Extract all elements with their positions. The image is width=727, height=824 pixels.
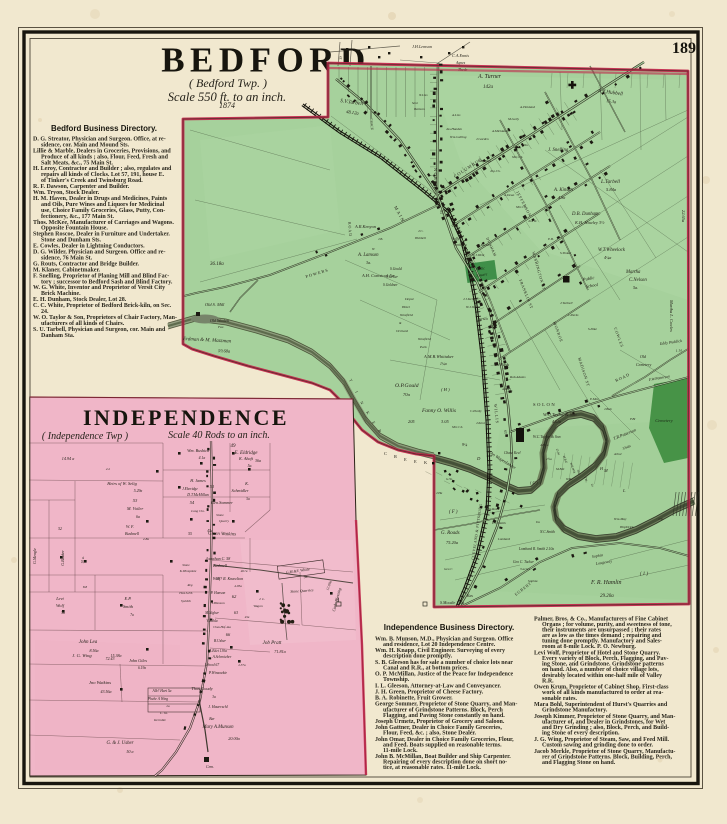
svg-text:1.Parks: 1.Parks	[568, 313, 579, 317]
svg-text:Jos.W.: Jos.W.	[528, 219, 537, 223]
svg-text:2a: 2a	[166, 704, 170, 708]
svg-text:A.Mickland: A.Mickland	[491, 129, 508, 133]
svg-text:Syd Kln: Syd Kln	[181, 599, 191, 603]
svg-text:Kas: Kas	[466, 594, 473, 598]
svg-text:Depot: Depot	[404, 297, 415, 301]
svg-text:4.1a: 4.1a	[199, 456, 206, 460]
svg-text:46?a: 46?a	[241, 569, 248, 573]
svg-text:S.Goldner: S.Goldner	[383, 283, 398, 287]
svg-text:Chase Keel: Chase Keel	[504, 451, 520, 455]
svg-text:A.Tinkland: A.Tinkland	[519, 105, 535, 109]
svg-text:J.H.Lemson: J.H.Lemson	[412, 44, 432, 49]
svg-text:( 1 ): ( 1 )	[640, 572, 648, 577]
svg-text:K.H. Hawley 3½: K.H. Hawley 3½	[574, 220, 605, 225]
svg-text:J.B.: J.B.	[378, 237, 383, 241]
svg-text:Job Pratt: Job Pratt	[263, 641, 282, 646]
svg-text:Fac.: Fac.	[217, 325, 224, 329]
svg-text:70a: 70a	[403, 392, 411, 397]
svg-text:No.: No.	[523, 143, 529, 147]
svg-text:E.Mon: E.Mon	[589, 397, 599, 401]
svg-text:J. H. Green, Proprietor of Che: J. H. Green, Proprietor of Cheese Factor…	[375, 689, 484, 695]
svg-text:N.Liss: N.Liss	[418, 93, 428, 97]
svg-text:1¼a: 1¼a	[440, 362, 447, 366]
svg-text:5a: 5a	[61, 611, 65, 615]
svg-text:G.Bauker: G.Bauker	[60, 550, 65, 566]
svg-text:K.Winspokie: K.Winspokie	[179, 569, 197, 573]
svg-text:C. C. White, Proprietor of Bed: C. C. White, Proprietor of Bedford Brick…	[33, 303, 172, 309]
svg-text:Martha: Martha	[625, 270, 641, 275]
svg-text:John Lea: John Lea	[79, 640, 98, 645]
svg-text:Kermble: Kermble	[153, 718, 166, 722]
svg-text:50 a: 50 a	[127, 749, 134, 754]
svg-text:4.03a: 4.03a	[234, 584, 242, 588]
svg-text:Flagging, and Paving Stone con: Flagging, and Paving Stone constantly on…	[383, 713, 505, 719]
svg-text:8.8: 8.8	[83, 585, 88, 589]
svg-text:M: M	[603, 468, 608, 473]
svg-text:Scott: Scott	[454, 243, 462, 247]
svg-text:S.Geller: S.Geller	[386, 275, 398, 279]
svg-text:Wagon: Wagon	[253, 604, 263, 608]
svg-text:S.Gould: S.Gould	[390, 267, 402, 271]
svg-text:Custom sawing and grinding don: Custom sawing and grinding done to order…	[542, 743, 653, 749]
svg-text:Mrs Ch.: Mrs Ch.	[451, 425, 463, 429]
svg-text:75.20a: 75.20a	[446, 540, 459, 545]
svg-text:11-mile Lock.: 11-mile Lock.	[383, 748, 418, 754]
svg-text:Sally: Sally	[452, 237, 460, 241]
svg-text:Township.: Township.	[383, 677, 410, 683]
svg-text:5.29a: 5.29a	[134, 489, 143, 493]
svg-text:Wolf: Wolf	[56, 603, 65, 608]
svg-text:J.C.: J.C.	[418, 229, 424, 233]
svg-text:Flour, Feed, &c. ; also, Stone: Flour, Feed, &c. ; also, Stone Dealer.	[383, 731, 477, 737]
svg-text:45a: 45a	[245, 615, 250, 619]
svg-text:Phebe A Wing: Phebe A Wing	[147, 697, 168, 701]
svg-text:A.Edet 130a: A.Edet 130a	[208, 649, 227, 653]
svg-text:R: R	[394, 454, 397, 459]
svg-text:W.C.Taylor & Son: W.C.Taylor & Son	[533, 435, 561, 439]
svg-text:( Bedford Twp. ): ( Bedford Twp. )	[189, 76, 267, 90]
svg-text:W.J.Went: W.J.Went	[472, 253, 485, 257]
svg-text:M.Nigher: M.Nigher	[204, 611, 219, 615]
svg-text:A.M.B.Whittaker: A.M.B.Whittaker	[423, 354, 454, 359]
svg-text:36a: 36a	[255, 458, 261, 463]
svg-text:4.80 a: 4.80 a	[540, 443, 549, 447]
svg-text:J. Hauerschl: J. Hauerschl	[208, 705, 227, 709]
svg-text:Canal and R.R., at bottom pric: Canal and R.R., at bottom prices.	[383, 665, 469, 671]
svg-text:J.J.Keeler: J.J.Keeler	[476, 243, 490, 247]
svg-text:John Giles: John Giles	[129, 658, 147, 663]
svg-text:L: L	[622, 488, 626, 493]
svg-text:desirably located within one-h: desirably located within one-half mile o…	[542, 673, 662, 679]
svg-text:K.: K.	[244, 481, 249, 486]
svg-text:63: 63	[234, 610, 238, 615]
svg-text:M.Getty: M.Getty	[507, 117, 520, 121]
svg-text:N.C.Smith: N.C.Smith	[539, 530, 555, 534]
svg-text:62: 62	[232, 594, 237, 599]
svg-text:Wm.Ross: Wm.Ross	[486, 507, 499, 511]
svg-text:Wm.May: Wm.May	[614, 517, 627, 521]
svg-text:J.Bab: J.Bab	[604, 407, 612, 411]
svg-text:E.C.Smith: E.C.Smith	[491, 521, 506, 525]
svg-text:20.00a: 20.00a	[228, 736, 240, 741]
svg-text:K. Ahaft: K. Ahaft	[238, 456, 254, 461]
svg-text:Mrs Ch.: Mrs Ch.	[515, 205, 527, 209]
svg-text:HopDrick: HopDrick	[619, 525, 634, 529]
svg-text:S.Tinker: S.Tinker	[560, 251, 572, 255]
svg-text:Bentson: Bentson	[414, 107, 425, 111]
svg-text:H. James: H. James	[189, 478, 206, 483]
svg-text:I. L. Gleeson, Attorney-at-Law: I. L. Gleeson, Attorney-at-Law and Conve…	[375, 683, 501, 689]
svg-text:Lombard: Lombard	[497, 537, 510, 541]
svg-text:4.61a: 4.61a	[552, 419, 561, 424]
svg-text:4.9a: 4.9a	[558, 195, 565, 200]
svg-text:J.Kent: J.Kent	[476, 421, 486, 425]
svg-text:W.Re: W.Re	[566, 477, 573, 481]
svg-text:5a.: 5a.	[248, 464, 253, 468]
svg-text:A.Liss: A.Liss	[451, 113, 461, 117]
svg-text:S.Dike: S.Dike	[588, 327, 597, 331]
svg-text:S.Moodie 130a: S.Moodie 130a	[440, 600, 464, 605]
svg-text:G.W.: G.W.	[446, 477, 453, 481]
svg-text:SOLON: SOLON	[533, 402, 556, 407]
svg-text:189: 189	[672, 40, 696, 57]
svg-text:S.Hanson: S.Hanson	[211, 601, 224, 605]
svg-text:A.Burt: A.Burt	[501, 387, 512, 391]
svg-text:R.R.: R.R.	[542, 678, 554, 684]
svg-text:1874: 1874	[219, 101, 235, 110]
svg-text:( Independence Twp ): ( Independence Twp )	[42, 431, 129, 442]
svg-text:Thos.S.P.S.: Thos.S.P.S.	[179, 591, 193, 595]
svg-text:Scale 40 Rods to an inch.: Scale 40 Rods to an inch.	[168, 430, 270, 441]
svg-text:B.Usher: B.Usher	[214, 639, 226, 643]
svg-text:7a: 7a	[130, 613, 134, 617]
svg-text:Green Watkins: Green Watkins	[208, 532, 236, 538]
svg-text:3a.: 3a.	[366, 260, 371, 265]
svg-text:Independence Business Director: Independence Business Directory.	[384, 623, 515, 632]
svg-text:ing Stone of every description: ing Stone of every description.	[542, 731, 620, 737]
svg-text:Jas.Handen: Jas.Handen	[446, 127, 462, 131]
svg-text:Levi: Levi	[55, 596, 64, 601]
svg-text:M.B.K: M.B.K	[555, 467, 565, 471]
svg-text:2½a: 2½a	[546, 457, 552, 461]
svg-text:Bar: Bar	[209, 717, 215, 721]
svg-text:Bushnell: Bushnell	[125, 531, 140, 536]
svg-text:J.Gorden: J.Gorden	[476, 137, 489, 141]
svg-text:Long Clo.: Long Clo.	[190, 509, 205, 513]
svg-text:( C ): ( C )	[530, 480, 538, 485]
svg-text:L. Ja.: L. Ja.	[159, 711, 168, 715]
svg-text:Old S. Mill: Old S. Mill	[205, 302, 225, 307]
svg-text:W.J.White: W.J.White	[466, 305, 481, 309]
svg-text:Gen.Sommer: Gen.Sommer	[211, 500, 233, 505]
svg-text:tice, at reasonable rates. 1: tice, at reasonable rates. 11-mile Lock.	[383, 765, 481, 771]
svg-text:Old Woolen: Old Woolen	[210, 318, 229, 323]
svg-text:2.2: 2.2	[106, 467, 111, 471]
svg-text:G. & J. Usher: G. & J. Usher	[106, 741, 133, 746]
svg-text:C.Purdy: C.Purdy	[470, 409, 482, 413]
svg-text:Arbor: Arbor	[613, 452, 623, 456]
svg-text:Bushnell: Bushnell	[213, 563, 228, 568]
svg-text:A. Kinsan: A. Kinsan	[553, 188, 574, 193]
svg-text:43.56a: 43.56a	[101, 689, 112, 694]
svg-text:D: D	[476, 456, 481, 461]
svg-text:J. G. Wing: J. G. Wing	[72, 653, 92, 658]
svg-text:D.T.McMillan: D.T.McMillan	[186, 493, 209, 497]
svg-text:Wm.Gulling: Wm.Gulling	[450, 135, 467, 139]
svg-text:Cemetery: Cemetery	[655, 418, 674, 423]
svg-text:Jno.Ch.: Jno.Ch.	[490, 169, 501, 173]
svg-text:W. F.: W. F.	[126, 524, 134, 529]
svg-text:5.84a: 5.84a	[606, 187, 617, 192]
svg-text:3.05: 3.05	[441, 419, 449, 424]
svg-text:J.Purdy: J.Purdy	[498, 363, 510, 367]
svg-text:J.Tarbell: J.Tarbell	[560, 301, 572, 305]
svg-text:Cem.: Cem.	[206, 765, 214, 769]
svg-text:Jno Watkins: Jno Watkins	[89, 680, 111, 685]
svg-text:Wm. Bushick: Wm. Bushick	[187, 448, 209, 453]
svg-text:Cemetery: Cemetery	[636, 362, 652, 367]
svg-text:C.A.Ennis: C.A.Ennis	[452, 53, 469, 58]
svg-text:Stone: Stone	[182, 563, 190, 567]
svg-text:P. Hanson: P. Hanson	[210, 591, 226, 595]
svg-text:Heirs of W. Selig: Heirs of W. Selig	[106, 481, 137, 486]
svg-text:G. Roads: G. Roads	[441, 531, 460, 536]
svg-text:Mary A.Munson: Mary A.Munson	[201, 725, 234, 730]
svg-text:Chas.Hof.44a: Chas.Hof.44a	[213, 625, 231, 629]
svg-text:J.W.: J.W.	[658, 517, 664, 521]
svg-text:W.T.Wheelock: W.T.Wheelock	[598, 248, 626, 253]
svg-text:Fanny O. Willis: Fanny O. Willis	[421, 408, 456, 414]
svg-text:Park: Park	[419, 345, 427, 349]
svg-text:A. Turner: A. Turner	[477, 74, 502, 80]
svg-text:P.Winsoekie: P.Winsoekie	[208, 671, 227, 675]
svg-text:15.38a: 15.38a	[111, 653, 122, 658]
svg-text:10 a.: 10 a.	[81, 556, 85, 563]
svg-text:51: 51	[210, 484, 215, 489]
svg-text:Hotel: Hotel	[401, 305, 410, 309]
svg-text:Danham Sta.: Danham Sta.	[41, 333, 75, 339]
svg-text:22.65a: 22.65a	[681, 210, 686, 223]
svg-text:6.19a: 6.19a	[138, 666, 146, 670]
svg-text:Old: Old	[640, 354, 647, 359]
svg-text:V.Buhla: V.Buhla	[206, 619, 217, 623]
svg-text:J. Snelling: J. Snelling	[548, 148, 569, 153]
svg-text:5a.: 5a.	[633, 285, 638, 290]
svg-text:Westfield: Westfield	[400, 313, 413, 317]
svg-text:J.Ha: J.Ha	[436, 491, 443, 495]
svg-text:I.Tarbell: I.Tarbell	[475, 317, 488, 321]
svg-text:School 67: School 67	[205, 663, 219, 667]
svg-text:36.18a: 36.18a	[210, 262, 224, 267]
svg-text:A.R.Kenyon: A.R.Kenyon	[354, 224, 377, 229]
svg-text:( F ): ( F )	[449, 510, 458, 515]
svg-text:L.Tarbell: L.Tarbell	[600, 179, 621, 185]
svg-text:W.O.Taylor & Son: W.O.Taylor & Son	[543, 412, 577, 417]
svg-text:A. Lamson: A. Lamson	[357, 253, 379, 258]
svg-text:Wolf? R. Knawlton: Wolf? R. Knawlton	[213, 576, 243, 581]
svg-text:2.8a: 2.8a	[143, 537, 149, 541]
svg-text:and Flagging Stone on hand.: and Flagging Stone on hand.	[542, 760, 616, 766]
svg-text:52: 52	[58, 527, 62, 531]
svg-text:Martha L. Cowles: Martha L. Cowles	[669, 299, 674, 332]
svg-text:Hubbell: Hubbell	[414, 236, 426, 240]
svg-text:55: 55	[188, 532, 192, 536]
svg-text:6a: 6a	[136, 515, 140, 519]
svg-text:Smith: Smith	[123, 604, 134, 609]
svg-text:C: C	[384, 451, 387, 456]
svg-text:and residence, Lot 20 Independ: and residence, Lot 20 Independence Centr…	[383, 642, 496, 648]
svg-text:49: 49	[231, 444, 237, 449]
svg-text:INDEPENDENCE: INDEPENDENCE	[83, 405, 289, 430]
svg-text:Bedford Business Directory.: Bedford Business Directory.	[51, 124, 157, 133]
svg-text:Quarry: Quarry	[219, 519, 229, 523]
svg-text:Ira: Ira	[535, 520, 540, 524]
svg-text:142a: 142a	[483, 85, 494, 90]
svg-text:E: E	[404, 457, 407, 462]
svg-text:Orchard: Orchard	[396, 329, 408, 333]
svg-text:A.Dean: A.Dean	[503, 193, 515, 197]
svg-text:Westfield: Westfield	[418, 337, 431, 341]
svg-text:J.Eberidge: J.Eberidge	[182, 487, 198, 491]
svg-text:Geo C. Tucker: Geo C. Tucker	[513, 560, 534, 564]
svg-text:4¼a: 4¼a	[604, 255, 611, 260]
svg-text:14.94 a: 14.94 a	[62, 456, 75, 461]
svg-text:( H ): ( H )	[441, 387, 450, 392]
svg-text:sonable rates.: sonable rates.	[542, 696, 577, 702]
svg-text:3a: 3a	[212, 695, 216, 699]
svg-text:Schmidler: Schmidler	[232, 488, 249, 493]
svg-text:J. L.: J. L.	[259, 597, 265, 601]
svg-text:Alb? Hart 5a: Alb? Hart 5a	[152, 689, 172, 693]
svg-text:Sent: Sent	[412, 101, 418, 105]
svg-text:B. A. Robinette, Fruit Grower.: B. A. Robinette, Fruit Grower.	[375, 696, 453, 702]
svg-text:Joseph Urmetz, Proprietor of G: Joseph Urmetz, Proprietor of Grocery and…	[375, 719, 505, 725]
svg-text:F. R. Hamlin: F. R. Hamlin	[590, 580, 622, 586]
svg-text:O.P.Gould: O.P.Gould	[395, 383, 419, 389]
svg-text:205: 205	[408, 419, 415, 424]
svg-text:J.J.Keller: J.J.Keller	[463, 297, 477, 301]
svg-text:G.Mengle: G.Mengle	[32, 548, 37, 564]
svg-text:3 acres: 3 acres	[520, 567, 530, 571]
svg-text:Rob.Adams: Rob.Adams	[509, 375, 526, 379]
svg-text:5a: 5a	[246, 497, 250, 501]
svg-text:Grindstone Manufactory.: Grindstone Manufactory.	[542, 708, 608, 714]
svg-text:room at 8-mile Lock. P. O. N: room at 8-mile Lock. P. O. Newburg.	[542, 644, 636, 650]
svg-text:Geo C: Geo C	[444, 567, 453, 571]
svg-text:2.37a: 2.37a	[238, 663, 246, 667]
svg-text:description done promptly.: description done promptly.	[383, 654, 453, 660]
svg-text:Jonathan C. 58: Jonathan C. 58	[206, 556, 231, 561]
svg-text:Thos Goudy: Thos Goudy	[191, 686, 212, 691]
svg-text:F.Bl: F.Bl	[629, 417, 635, 421]
svg-text:NORTH: NORTH	[433, 168, 438, 189]
svg-text:Mrs Ch.: Mrs Ch.	[511, 155, 523, 159]
svg-text:Reg: Reg	[187, 583, 193, 587]
svg-text:Lombard R. Smith 2.10a: Lombard R. Smith 2.10a	[518, 547, 554, 551]
svg-text:E.P.: E.P.	[124, 596, 132, 601]
svg-text:71.81a: 71.81a	[274, 649, 286, 654]
svg-text:Agnes: Agnes	[455, 61, 466, 65]
svg-text:E: E	[414, 459, 417, 464]
svg-text:53: 53	[133, 498, 138, 503]
svg-text:M. Voiler: M. Voiler	[126, 506, 144, 511]
svg-text:E.B.: E.B.	[547, 237, 554, 241]
svg-text:59.68a: 59.68a	[218, 348, 231, 354]
svg-text:V.Phillips: V.Phillips	[478, 159, 492, 163]
svg-text:3a.: 3a.	[303, 575, 308, 580]
svg-text:Stone: Stone	[216, 513, 224, 517]
svg-text:C.Nelson: C.Nelson	[629, 278, 647, 283]
svg-text:Sophia: Sophia	[528, 579, 538, 583]
svg-text:D.B. Dunham: D.B. Dunham	[571, 212, 599, 217]
svg-text:A.Schroieber: A.Schroieber	[212, 655, 232, 659]
svg-text:9¼: 9¼	[462, 442, 468, 447]
svg-text:29.20a: 29.20a	[600, 594, 614, 599]
